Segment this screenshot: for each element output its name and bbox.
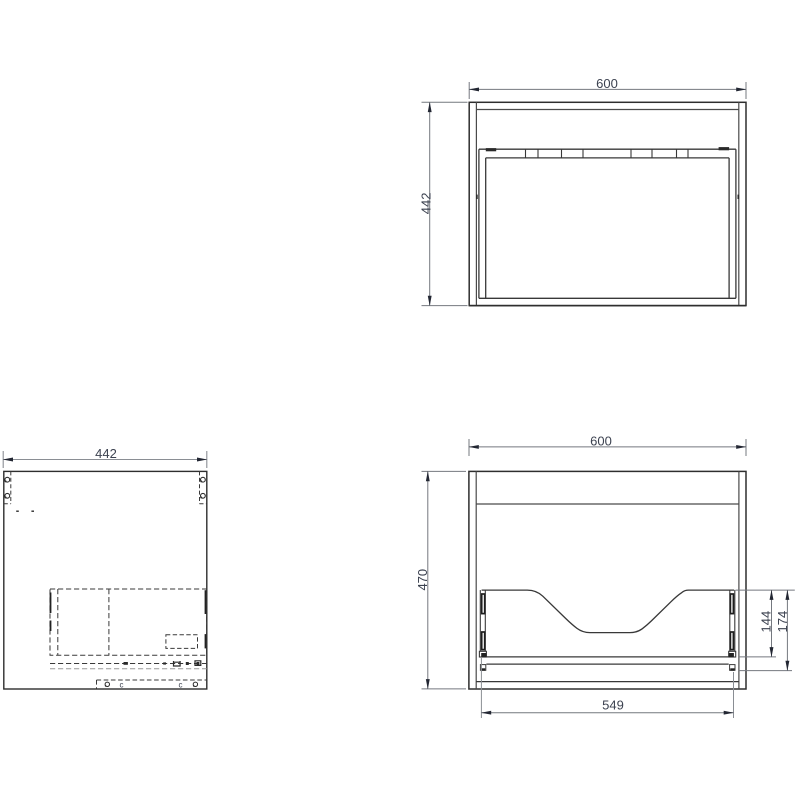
svg-text:442: 442 xyxy=(418,193,433,215)
svg-text:470: 470 xyxy=(415,569,430,591)
svg-text:600: 600 xyxy=(596,76,618,91)
svg-text:174: 174 xyxy=(775,611,790,633)
svg-text:144: 144 xyxy=(758,611,773,633)
svg-text:c: c xyxy=(120,680,124,689)
svg-text:600: 600 xyxy=(590,434,612,449)
svg-text:549: 549 xyxy=(602,697,624,712)
svg-text:442: 442 xyxy=(95,446,117,461)
svg-text:c: c xyxy=(179,680,183,689)
